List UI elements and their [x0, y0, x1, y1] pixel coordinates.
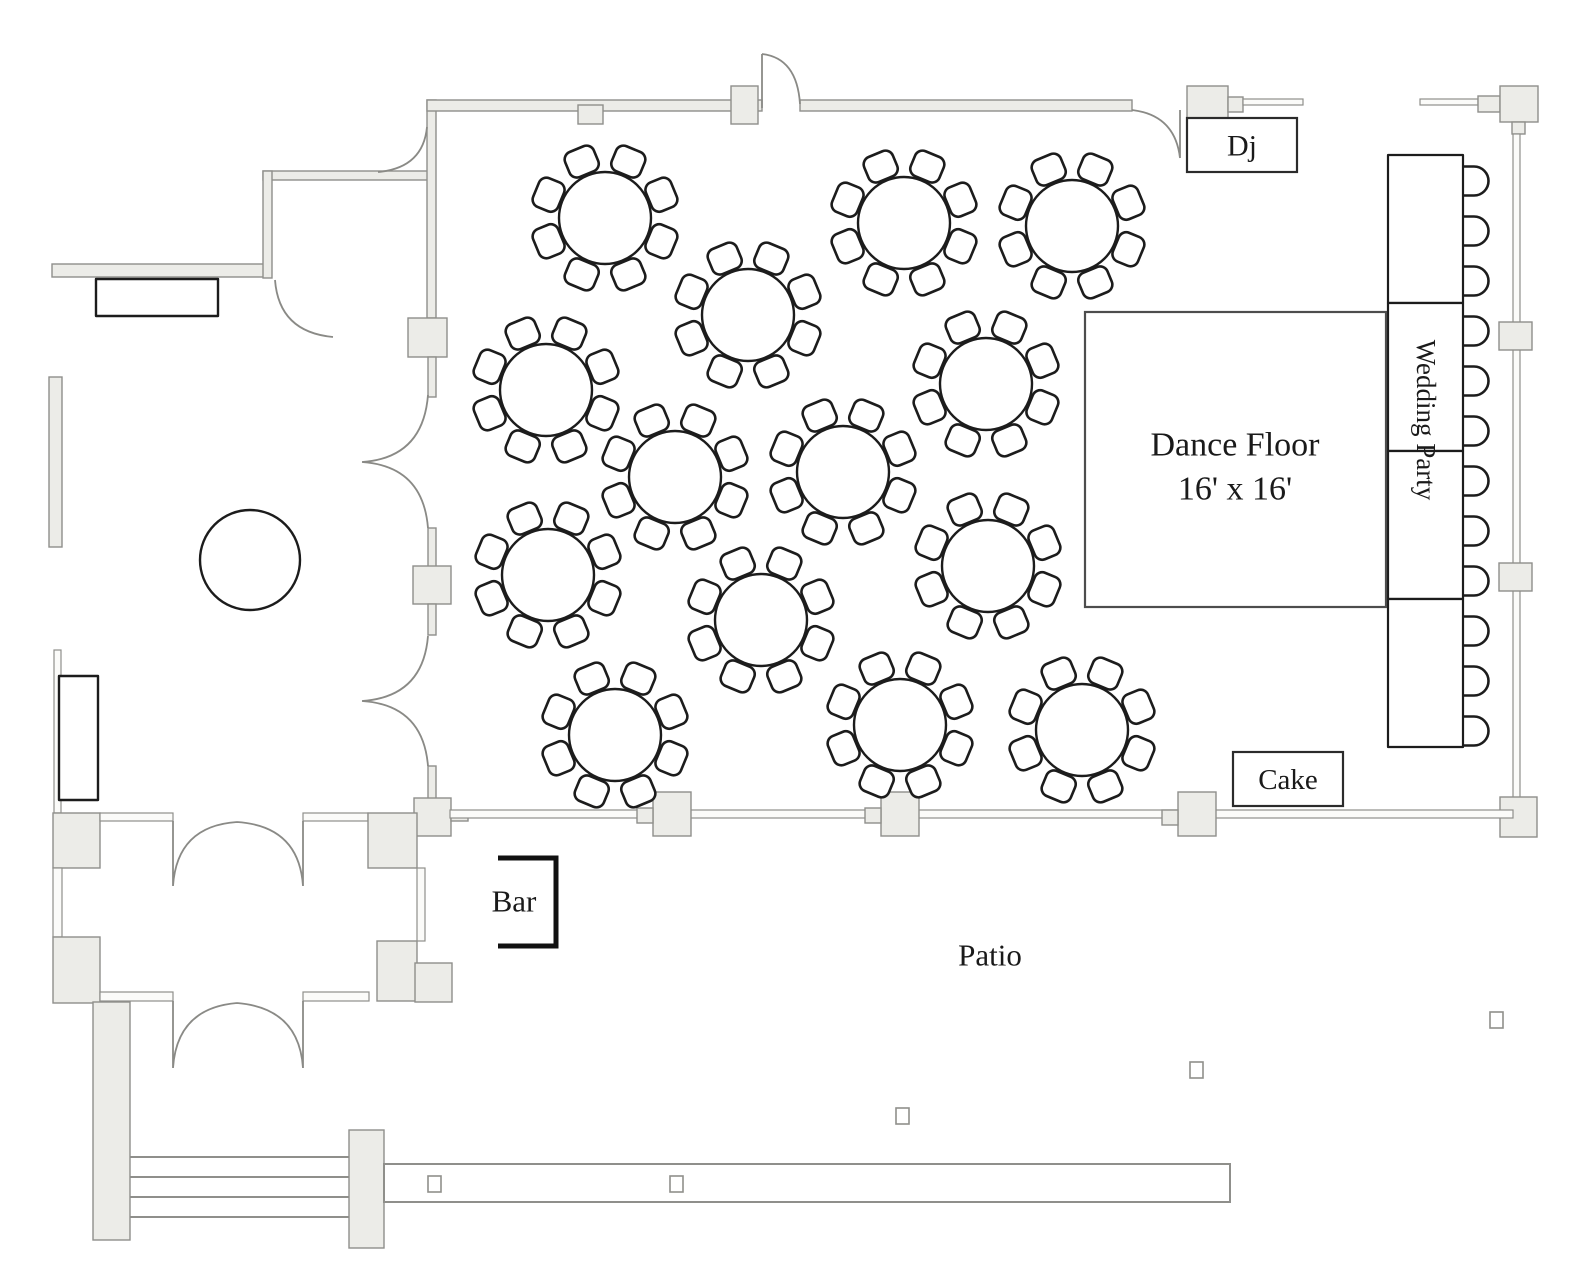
head-table-chair — [1462, 717, 1489, 746]
table-top — [502, 529, 594, 621]
wall-tab — [637, 808, 653, 823]
window-sill — [1243, 99, 1303, 105]
patio-post — [670, 1176, 683, 1192]
french-door-arcs — [362, 395, 428, 528]
post — [881, 792, 919, 836]
window-sill — [100, 813, 173, 821]
wall-segment — [428, 766, 436, 800]
guest-table-5 — [471, 315, 621, 465]
head-table-chair — [1462, 667, 1489, 696]
column — [377, 941, 417, 1001]
window-strip — [417, 868, 425, 941]
guest-table-11 — [686, 545, 836, 695]
french-door-arcs — [362, 636, 428, 766]
dj-table — [1187, 86, 1228, 118]
table-top — [702, 269, 794, 361]
head-table-chair — [1462, 267, 1489, 296]
table-top — [854, 679, 946, 771]
window-strip — [1513, 134, 1520, 798]
column — [368, 813, 417, 868]
post — [653, 792, 691, 836]
patio-post — [896, 1108, 909, 1124]
patio-post — [1190, 1062, 1203, 1078]
head-table-segment — [1388, 599, 1463, 747]
guest-table-10 — [473, 500, 623, 650]
door-arc — [762, 54, 800, 108]
window-strip — [450, 810, 1513, 818]
stairs — [130, 1157, 349, 1217]
dj-label: Dj — [1227, 130, 1257, 163]
head-table-chair — [1462, 617, 1489, 646]
head-table-chair — [1462, 367, 1489, 396]
guest-table-9 — [913, 491, 1063, 641]
wall-segment — [800, 100, 1132, 111]
window-sill — [100, 992, 173, 1001]
window-mullion — [1499, 322, 1532, 350]
head-table-chair — [1462, 467, 1489, 496]
window-sill — [303, 813, 368, 821]
guest-tables-group — [471, 143, 1157, 810]
column — [414, 798, 451, 836]
wall-tab — [1512, 122, 1525, 134]
column — [413, 566, 451, 604]
wall-segment — [428, 528, 436, 567]
window-mullion — [1499, 563, 1532, 591]
table-top — [942, 520, 1034, 612]
table-top — [569, 689, 661, 781]
head-table-chair — [1462, 417, 1489, 446]
side-table — [96, 279, 218, 316]
table-top — [715, 574, 807, 666]
head-table-chair — [1462, 517, 1489, 546]
table-top — [797, 426, 889, 518]
head-table-chair — [1462, 217, 1489, 246]
wall-segment — [428, 604, 436, 635]
guest-table-8 — [768, 397, 918, 547]
patio-post — [1490, 1012, 1503, 1028]
patio-label: Patio — [958, 938, 1022, 973]
guest-table-12 — [825, 650, 975, 800]
table-top — [1026, 180, 1118, 272]
guest-table-4 — [997, 151, 1147, 301]
bar-label: Bar — [492, 884, 537, 919]
door-arc — [275, 280, 333, 337]
wall-segment — [427, 100, 436, 318]
cake-label: Cake — [1258, 764, 1318, 796]
wall-segment — [49, 377, 62, 547]
column — [415, 963, 452, 1002]
side-table — [59, 676, 98, 800]
column — [53, 813, 100, 868]
wall-tab — [1228, 97, 1243, 112]
stair-post — [93, 1002, 130, 1240]
corner-post — [1500, 86, 1538, 122]
door-arc — [1132, 110, 1180, 158]
patio-edge — [384, 1164, 1230, 1202]
dance-floor-label-line1: Dance Floor — [1150, 427, 1320, 464]
patio-post — [428, 1176, 441, 1192]
column — [731, 86, 758, 124]
guest-table-14 — [1007, 655, 1157, 805]
table-top — [500, 344, 592, 436]
floor-plan: Dance Floor 16' x 16' Dj Cake Bar Weddin… — [0, 0, 1590, 1278]
wall-tab — [1478, 96, 1500, 112]
window-sill — [1420, 99, 1478, 105]
table-top — [1036, 684, 1128, 776]
head-table-chair — [1462, 567, 1489, 596]
wall-tab — [865, 808, 881, 823]
guest-table-2 — [673, 240, 823, 390]
table-top — [858, 177, 950, 269]
floor-plan-svg: Dance Floor 16' x 16' Dj Cake Bar Weddin… — [0, 0, 1590, 1278]
vestibule-door-arcs — [173, 821, 303, 886]
guest-table-3 — [829, 148, 979, 298]
guest-table-6 — [911, 309, 1061, 459]
wall-tab — [1162, 810, 1178, 825]
column — [578, 105, 603, 124]
window-strip — [53, 868, 62, 937]
wall-segment — [52, 264, 270, 277]
guest-table-13 — [540, 660, 690, 810]
stair-post — [349, 1130, 384, 1248]
wall-segment — [263, 171, 272, 278]
head-table-chair — [1462, 317, 1489, 346]
column — [53, 937, 100, 1003]
table-top — [559, 172, 651, 264]
wedding-party-label: Wedding Party — [1411, 340, 1441, 501]
head-table-segment — [1388, 155, 1463, 303]
wall-segment — [263, 171, 433, 180]
door-arc — [378, 127, 427, 172]
guest-table-7 — [600, 402, 750, 552]
head-table-chair — [1462, 167, 1489, 196]
dance-floor-label-line2: 16' x 16' — [1178, 471, 1292, 508]
vestibule-door-arcs — [173, 1001, 303, 1068]
round-side-table — [200, 510, 300, 610]
table-top — [940, 338, 1032, 430]
window-sill — [303, 992, 369, 1001]
guest-table-1 — [530, 143, 680, 293]
wall-segment — [428, 357, 436, 397]
table-top — [629, 431, 721, 523]
column — [408, 318, 447, 357]
post — [1178, 792, 1216, 836]
